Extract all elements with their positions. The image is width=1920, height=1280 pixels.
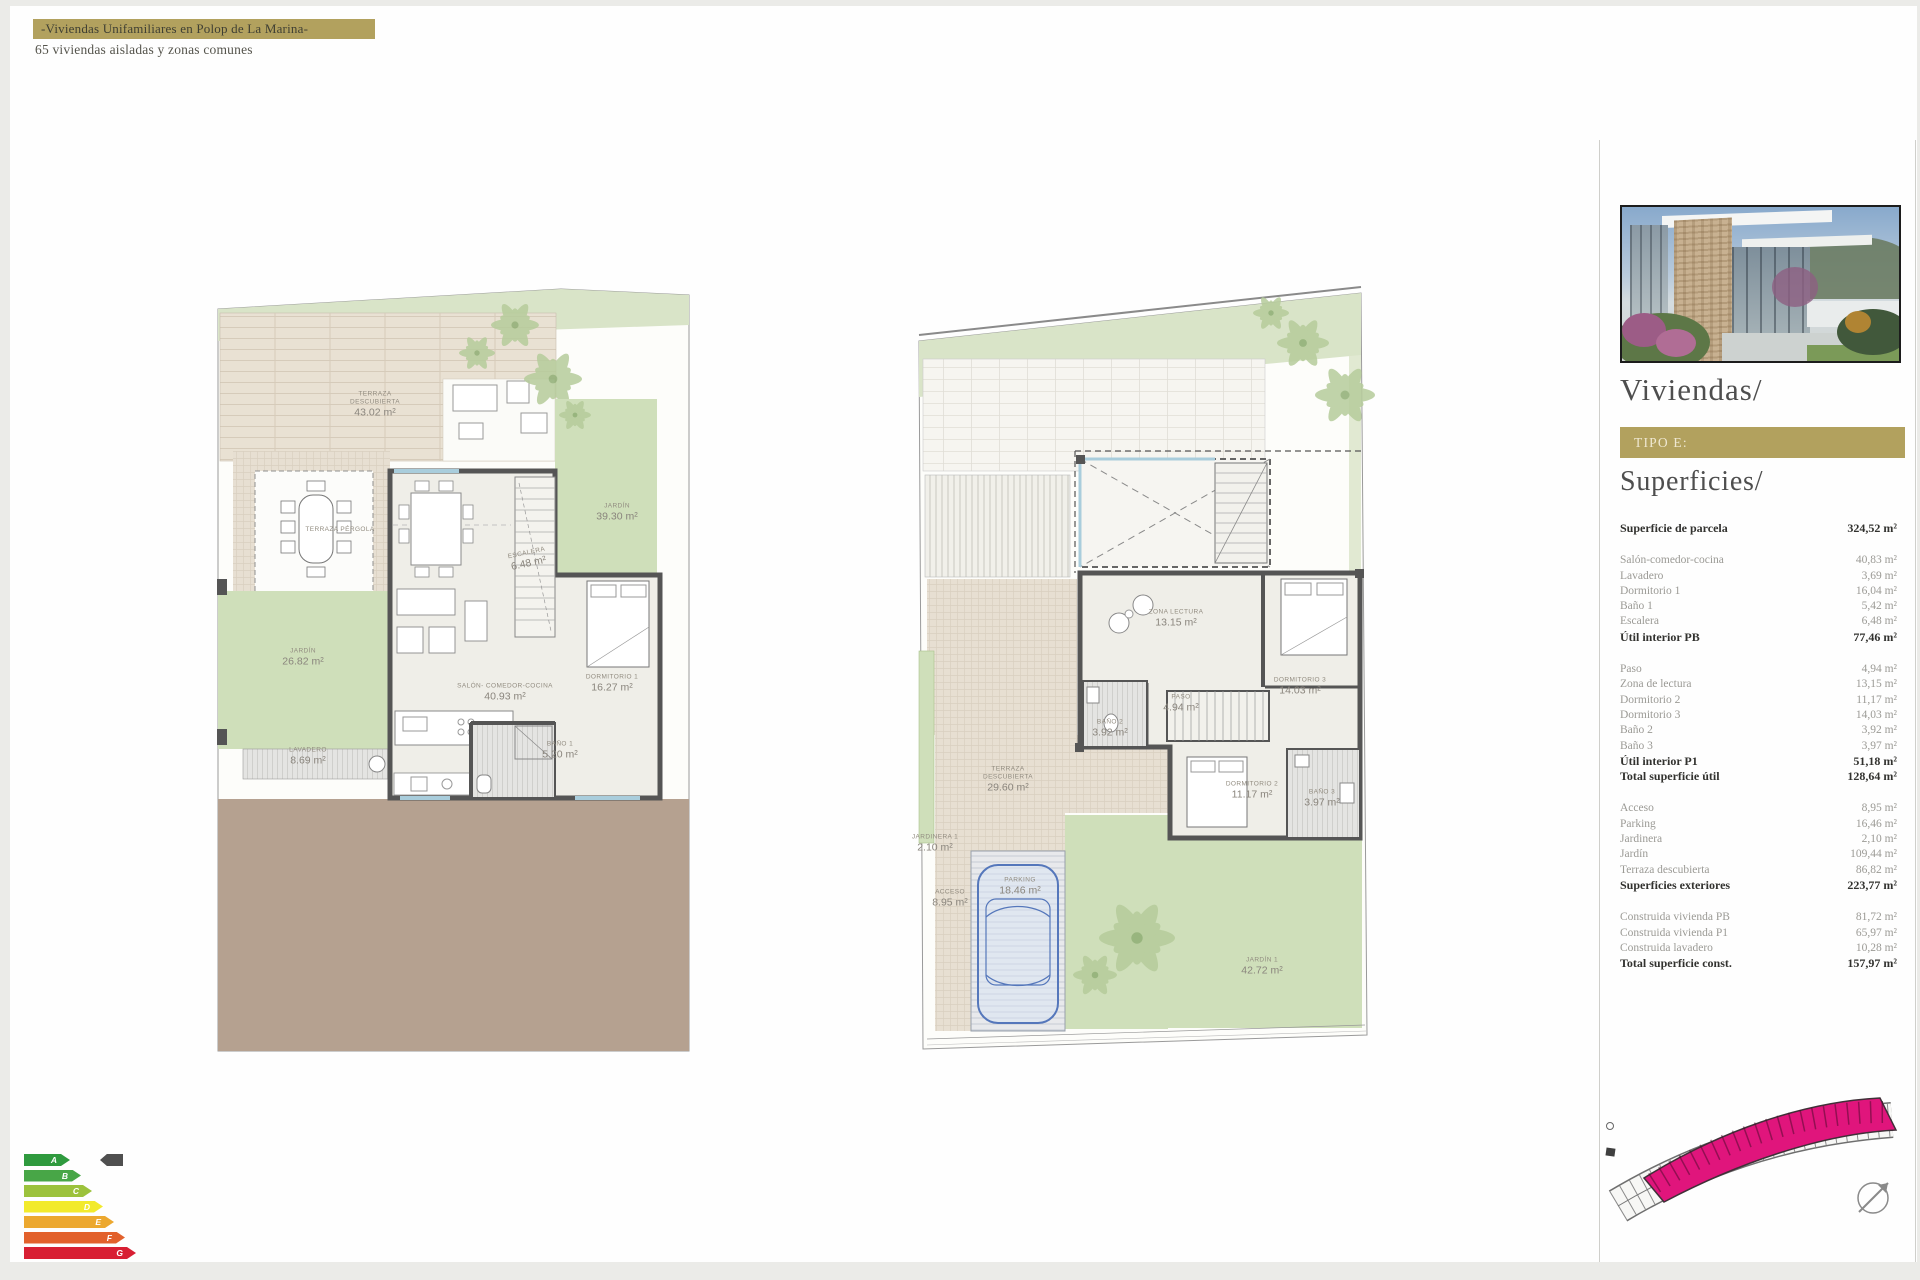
row-value: 5,42 m² [1862,599,1897,614]
row-value: 86,82 m² [1856,863,1897,878]
table-row: Construida vivienda PB81,72 m² [1620,910,1897,925]
row-label: Terraza descubierta [1620,863,1710,878]
row-label: Salón-comedor-cocina [1620,553,1724,568]
room-label-lavadero: LAVADERO 8.69 m² [289,746,327,767]
row-label: Jardinera [1620,832,1662,847]
room-label-bano-2: BAÑO 2 3.92 m² [1092,718,1128,739]
energy-grade-G: G [24,1247,136,1259]
north-arrow-icon [1858,1183,1888,1213]
row-label: Dormitorio 1 [1620,584,1680,599]
energy-grade-C: C [24,1185,92,1197]
site-plan [1600,1078,1920,1263]
table-row: Dormitorio 314,03 m² [1620,708,1897,723]
row-value: 13,15 m² [1856,677,1897,692]
room-label-jardinera: JARDINERA 1 2.10 m² [912,833,958,854]
row-label: Baño 3 [1620,739,1653,754]
energy-grade-A: A [24,1154,70,1166]
row-label: Útil interior P1 [1620,754,1698,769]
table-group: Salón-comedor-cocina40,83 m²Lavadero3,69… [1620,553,1897,645]
table-row: Jardinera2,10 m² [1620,832,1897,847]
surfaces-title: Superficies/ [1620,466,1763,498]
table-group: Paso4,94 m²Zona de lectura13,15 m²Dormit… [1620,662,1897,784]
floorplan-first-floor [915,283,1375,1058]
project-subtitle: 65 viviendas aisladas y zonas comunes [35,42,253,58]
table-row: Dormitorio 116,04 m² [1620,584,1897,599]
row-value: 3,97 m² [1862,739,1897,754]
room-label-dormitorio-1: DORMITORIO 1 16.27 m² [586,673,638,694]
row-label: Construida vivienda PB [1620,910,1730,925]
row-value: 10,28 m² [1856,941,1897,956]
table-row: Total superficie const.157,97 m² [1620,956,1897,971]
row-value: 16,46 m² [1856,817,1897,832]
table-row: Total superficie útil128,64 m² [1620,769,1897,784]
energy-grade-E: E [24,1216,114,1228]
table-row: Paso4,94 m² [1620,662,1897,677]
room-label-terraza-descubierta: TERRAZA DESCUBIERTA 43.02 m² [350,390,400,419]
row-value: 51,18 m² [1853,754,1897,769]
row-value: 3,92 m² [1862,723,1897,738]
row-label: Total superficie const. [1620,956,1732,971]
room-label-dormitorio-2: DORMITORIO 2 11.17 m² [1226,780,1278,801]
table-row: Construida vivienda P165,97 m² [1620,926,1897,941]
brochure-page: -Viviendas Unifamiliares en Polop de La … [0,0,1920,1280]
room-label-paso: PASO 4.94 m² [1163,693,1199,714]
row-label: Útil interior PB [1620,630,1700,645]
row-label: Lavadero [1620,569,1663,584]
row-value: 14,03 m² [1856,708,1897,723]
row-label: Jardín [1620,847,1648,862]
energy-grade-F: F [24,1232,125,1244]
row-value: 77,46 m² [1853,630,1897,645]
row-label: Dormitorio 2 [1620,693,1680,708]
row-label: Baño 2 [1620,723,1653,738]
room-label-terraza-pergola: TERRAZA PÉRGOLA [305,526,374,534]
table-row: Baño 33,97 m² [1620,739,1897,754]
room-label-dormitorio-3: DORMITORIO 3 14.03 m² [1274,676,1326,697]
table-row: Útil interior P151,18 m² [1620,754,1897,769]
table-row: Baño 15,42 m² [1620,599,1897,614]
table-row: Acceso8,95 m² [1620,801,1897,816]
page-edge-left [0,0,10,1280]
room-label-salon: SALÓN- COMEDOR-COCINA 40.93 m² [457,682,553,703]
floorplan-ground-floor [215,283,693,1058]
siteplan-marker-square [1605,1147,1615,1156]
room-label-bano-3: BAÑO 3 3.97 m² [1304,788,1340,809]
energy-rating-marker [100,1154,123,1166]
table-row: Construida lavadero10,28 m² [1620,941,1897,956]
room-label-terraza-descubierta-p1: TERRAZA DESCUBIERTA 29.60 m² [983,765,1033,794]
table-row: Útil interior PB77,46 m² [1620,630,1897,645]
room-label-jardin-derecha: JARDÍN 39.30 m² [596,502,637,523]
row-label: Acceso [1620,801,1654,816]
table-row: Superficies exteriores223,77 m² [1620,878,1897,893]
table-row: Lavadero3,69 m² [1620,569,1897,584]
siteplan-marker-circle [1607,1123,1614,1130]
table-group: Construida vivienda PB81,72 m²Construida… [1620,910,1897,971]
room-label-zona-lectura: ZONA LECTURA 13.15 m² [1149,608,1204,629]
row-label: Dormitorio 3 [1620,708,1680,723]
row-value: 81,72 m² [1856,910,1897,925]
energy-grade-D: D [24,1201,103,1213]
row-value: 324,52 m² [1847,521,1897,536]
room-label-jardin-izquierda: JARDÍN 26.82 m² [282,647,323,668]
row-value: 4,94 m² [1862,662,1897,677]
row-label: Construida lavadero [1620,941,1713,956]
table-row: Terraza descubierta86,82 m² [1620,863,1897,878]
page-edge-bottom [0,1262,1920,1280]
table-row: Zona de lectura13,15 m² [1620,677,1897,692]
row-value: 65,97 m² [1856,926,1897,941]
room-label-parking: PARKING 18.46 m² [999,876,1040,897]
row-label: Parking [1620,817,1656,832]
table-row: Escalera6,48 m² [1620,614,1897,629]
row-value: 16,04 m² [1856,584,1897,599]
room-label-bano-1: BAÑO 1 5.20 m² [542,740,578,761]
table-row: Baño 23,92 m² [1620,723,1897,738]
table-group: Acceso8,95 m²Parking16,46 m²Jardinera2,1… [1620,801,1897,893]
surface-table: Superficie de parcela324,52 m²Salón-come… [1620,521,1897,988]
row-label: Baño 1 [1620,599,1653,614]
row-value: 40,83 m² [1856,553,1897,568]
table-row: Parking16,46 m² [1620,817,1897,832]
row-label: Total superficie útil [1620,769,1720,784]
table-row: Superficie de parcela324,52 m² [1620,521,1897,536]
room-label-acceso: ACCESO 8.95 m² [932,888,968,909]
row-label: Superficie de parcela [1620,521,1728,536]
energy-scale: ABCDEFG [24,1154,136,1263]
row-value: 8,95 m² [1862,801,1897,816]
row-value: 109,44 m² [1850,847,1897,862]
type-label: TIPO E: [1634,435,1688,450]
type-label-bar: TIPO E: [1620,427,1905,458]
row-value: 3,69 m² [1862,569,1897,584]
row-label: Escalera [1620,614,1659,629]
row-label: Zona de lectura [1620,677,1692,692]
energy-grade-B: B [24,1170,81,1182]
table-row: Dormitorio 211,17 m² [1620,693,1897,708]
project-title: -Viviendas Unifamiliares en Polop de La … [41,21,308,36]
table-group: Superficie de parcela324,52 m² [1620,521,1897,536]
table-row: Jardín109,44 m² [1620,847,1897,862]
villa-photo [1620,205,1901,363]
sidebar-title: Viviendas/ [1620,372,1762,408]
siteplan-highlighted-row [1644,1098,1896,1202]
room-label-jardin-1: JARDÍN 1 42.72 m² [1241,956,1282,977]
row-value: 128,64 m² [1847,769,1897,784]
row-label: Paso [1620,662,1642,677]
page-edge-top [0,0,1920,6]
row-label: Construida vivienda P1 [1620,926,1728,941]
row-label: Superficies exteriores [1620,878,1730,893]
row-value: 2,10 m² [1862,832,1897,847]
row-value: 11,17 m² [1856,693,1897,708]
row-value: 6,48 m² [1862,614,1897,629]
project-title-bar: -Viviendas Unifamiliares en Polop de La … [33,19,375,39]
table-row: Salón-comedor-cocina40,83 m² [1620,553,1897,568]
row-value: 223,77 m² [1847,878,1897,893]
row-value: 157,97 m² [1847,956,1897,971]
